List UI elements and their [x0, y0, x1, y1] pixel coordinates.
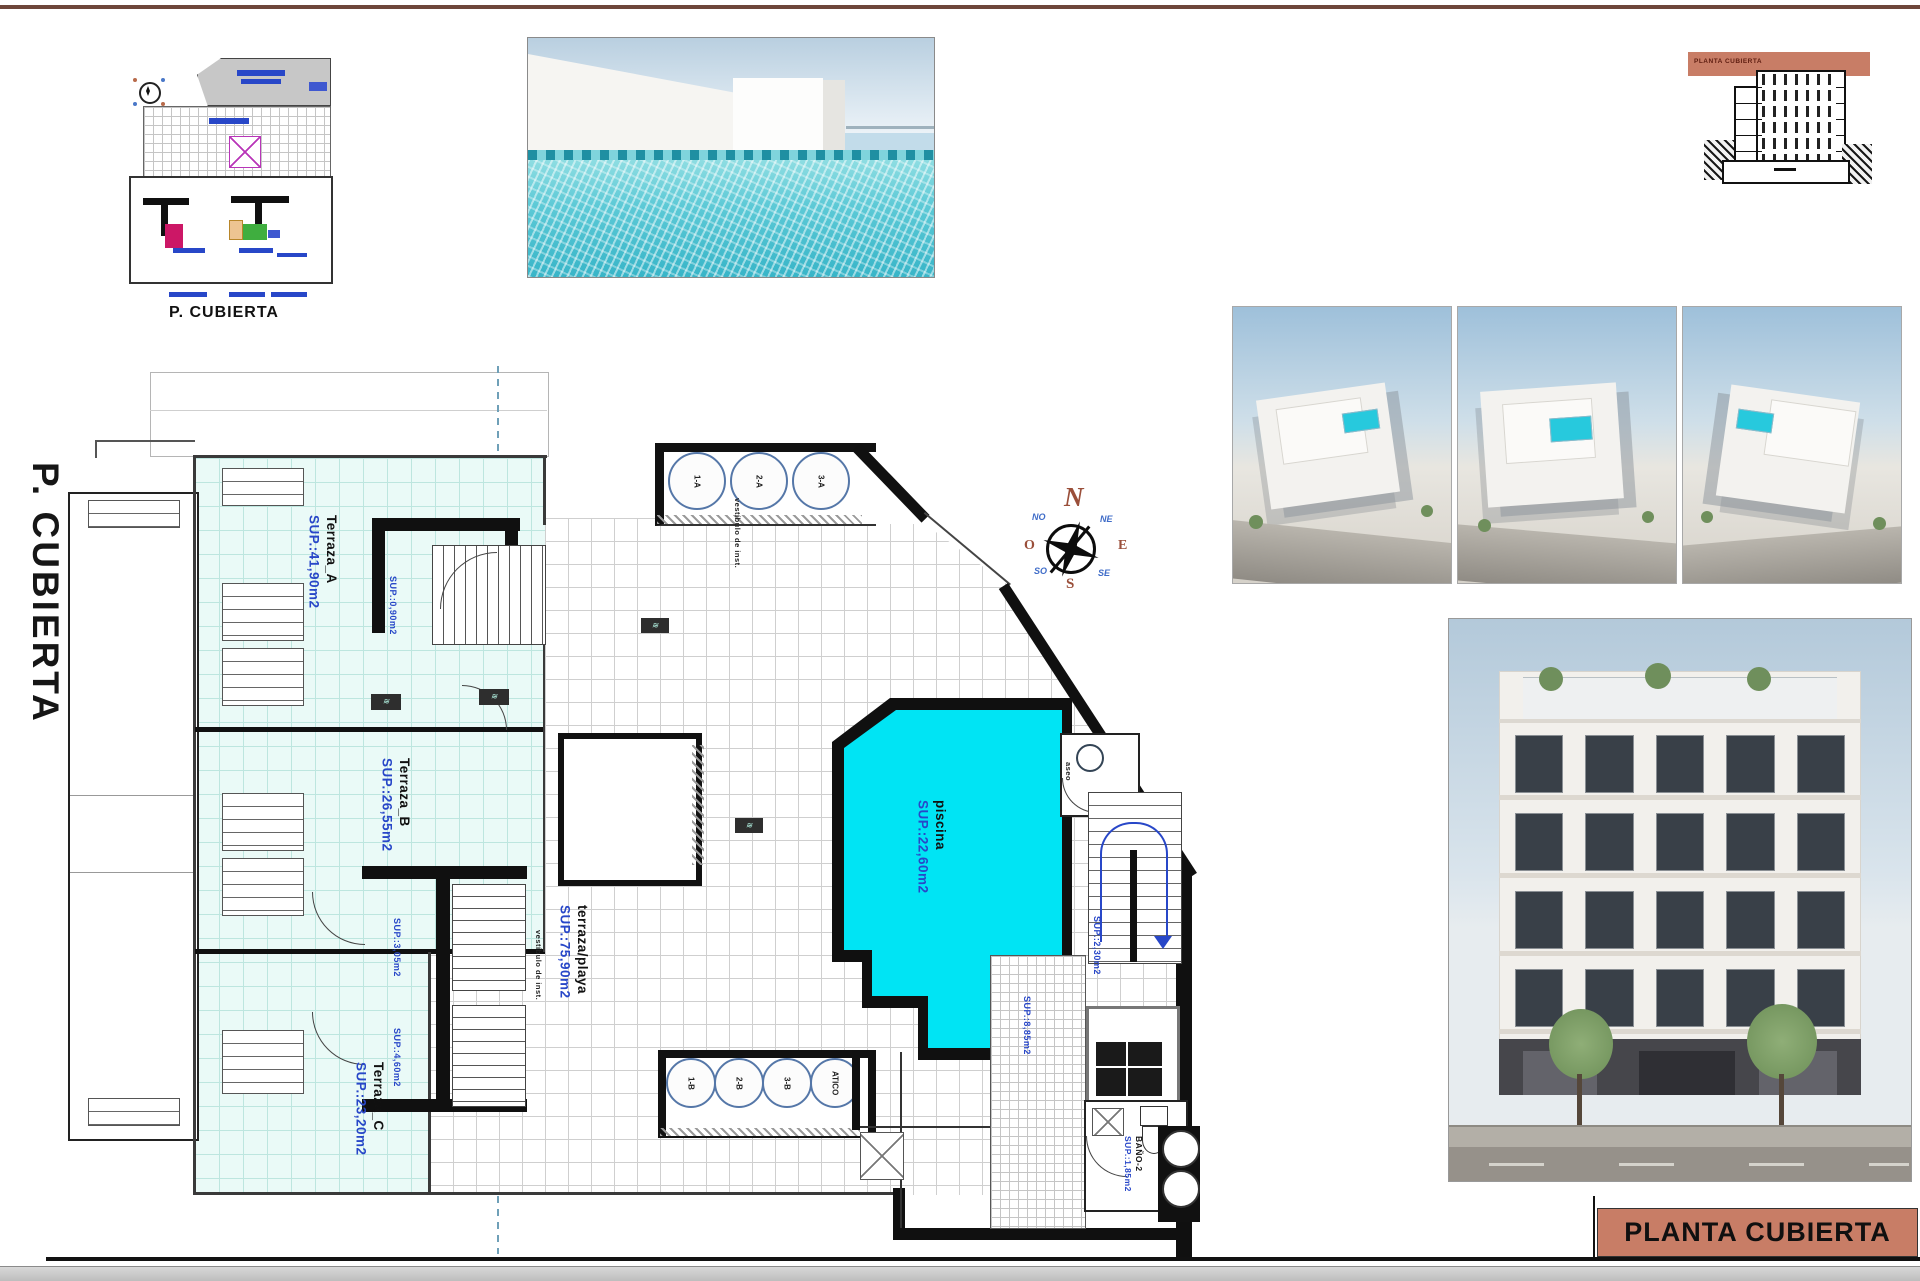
stair-wall	[372, 518, 385, 633]
elevator-car	[1096, 1042, 1162, 1096]
boundary-wall	[893, 1188, 905, 1240]
roof-panel	[88, 1098, 180, 1126]
centerline-dashed	[497, 1196, 499, 1254]
sup-label: SUP.:8,85m2	[1022, 996, 1032, 1055]
sup-label: SUP.:4,60m2	[392, 1028, 402, 1087]
pergola-panel	[222, 793, 304, 851]
skylight-circle: 1-A	[668, 452, 726, 510]
neighbor-line	[150, 410, 547, 411]
compass-ne: NE	[1100, 514, 1113, 524]
roof-panel	[88, 500, 180, 528]
skylight-circle: 2-B	[714, 1058, 764, 1108]
room-label-terraza-b: Terraza_BSUP.:26,55m2	[378, 758, 413, 852]
skylight-circle: 3-A	[792, 452, 850, 510]
compass-s: S	[1066, 576, 1074, 593]
skylight-circle: 3-B	[762, 1058, 812, 1108]
wall	[543, 640, 545, 730]
vent-box: ≋	[371, 694, 401, 710]
compass-no: NO	[1032, 512, 1046, 522]
stair-wall	[372, 518, 520, 531]
elevator-line	[1126, 1042, 1128, 1096]
pergola-panel	[222, 468, 304, 506]
room-label-terraza-a: Terraza_ASUP.:41,90m2	[305, 515, 340, 609]
sheet-title-block: PLANTA CUBIERTA	[1597, 1208, 1918, 1257]
room-label-piscina: piscinaSUP.:22,60m2	[914, 800, 949, 894]
stair-direction-arrow	[1100, 822, 1168, 942]
room-label-bano2: BAÑO-2SUP.:1,85m2	[1122, 1136, 1144, 1192]
neighbor-outline	[150, 372, 549, 457]
stair-wall	[436, 866, 450, 1112]
stair-treads	[452, 1005, 526, 1107]
room-label-terraza-playa: terraza/playaSUP.:75,90m2	[556, 905, 591, 999]
installations-room	[990, 955, 1086, 1229]
sup-label: SUP.:2,30m2	[1092, 916, 1102, 975]
skylight-circle: 1-B	[666, 1058, 716, 1108]
elevator-line	[1096, 1066, 1162, 1068]
shower-tray	[860, 1132, 904, 1180]
vent-box: ≋	[641, 618, 669, 633]
hatch-strip	[692, 745, 704, 865]
centerline-dashed	[497, 366, 499, 456]
floor-plan: SUP.:0,90m2 SUP.:3,05m2 SUP.:4,60m2 1-A …	[0, 0, 1920, 1280]
water-tank	[1162, 1130, 1200, 1168]
aseo-basin	[1076, 744, 1104, 772]
pergola-panel	[222, 583, 304, 641]
parapet-step	[95, 440, 97, 458]
wall	[428, 952, 431, 1195]
wall	[193, 455, 196, 1195]
side-roof-strip	[68, 492, 199, 1141]
hatch-strip	[660, 1128, 860, 1136]
compass-se: SE	[1098, 568, 1110, 578]
sup-label: SUP.:0,90m2	[388, 576, 398, 635]
wall	[543, 730, 545, 952]
bottom-rule	[46, 1257, 1920, 1261]
wall	[193, 1192, 433, 1195]
sheet-title: PLANTA CUBIERTA	[1598, 1209, 1917, 1256]
vestibule-label: vestíbulo de inst.	[733, 498, 742, 568]
pergola-panel	[222, 648, 304, 706]
boundary-wall	[893, 1228, 1188, 1240]
hatch-strip	[657, 515, 862, 524]
toilet-tank	[1140, 1106, 1168, 1126]
pergola-panel	[222, 1030, 304, 1094]
water-tank	[1162, 1170, 1200, 1208]
compass-so: SO	[1034, 566, 1047, 576]
compass-n: N	[1064, 482, 1084, 513]
vestibule-label: vestíbulo de inst.	[534, 930, 543, 1000]
sup-label: SUP.:3,05m2	[392, 918, 402, 977]
wall	[430, 1192, 900, 1195]
compass-o: O	[1024, 538, 1035, 554]
roof-access-room	[558, 733, 702, 886]
compass-rose: N NO NE O E SO SE S	[1022, 480, 1132, 604]
compass-star-icon	[1046, 524, 1096, 574]
wall	[193, 455, 547, 458]
roof-joint-line	[70, 872, 193, 873]
sink	[1092, 1108, 1124, 1136]
wall	[852, 1050, 860, 1130]
parapet-step	[95, 440, 195, 442]
titleblock-divider	[1593, 1196, 1595, 1257]
vent-box: ≋	[735, 818, 763, 833]
roof-joint-line	[70, 795, 193, 796]
room-label-aseo: aseo	[1064, 762, 1073, 781]
wall	[543, 455, 546, 525]
compass-e: E	[1118, 538, 1127, 554]
arrowhead-icon	[1154, 936, 1172, 949]
partition	[858, 1126, 990, 1128]
pergola-panel	[222, 858, 304, 916]
bottom-bar	[0, 1266, 1920, 1281]
stair-treads	[452, 884, 526, 991]
vent-box: ≋	[479, 689, 509, 705]
room-label-terraza-c: Terraza_CSUP.:23,20m2	[352, 1062, 387, 1156]
